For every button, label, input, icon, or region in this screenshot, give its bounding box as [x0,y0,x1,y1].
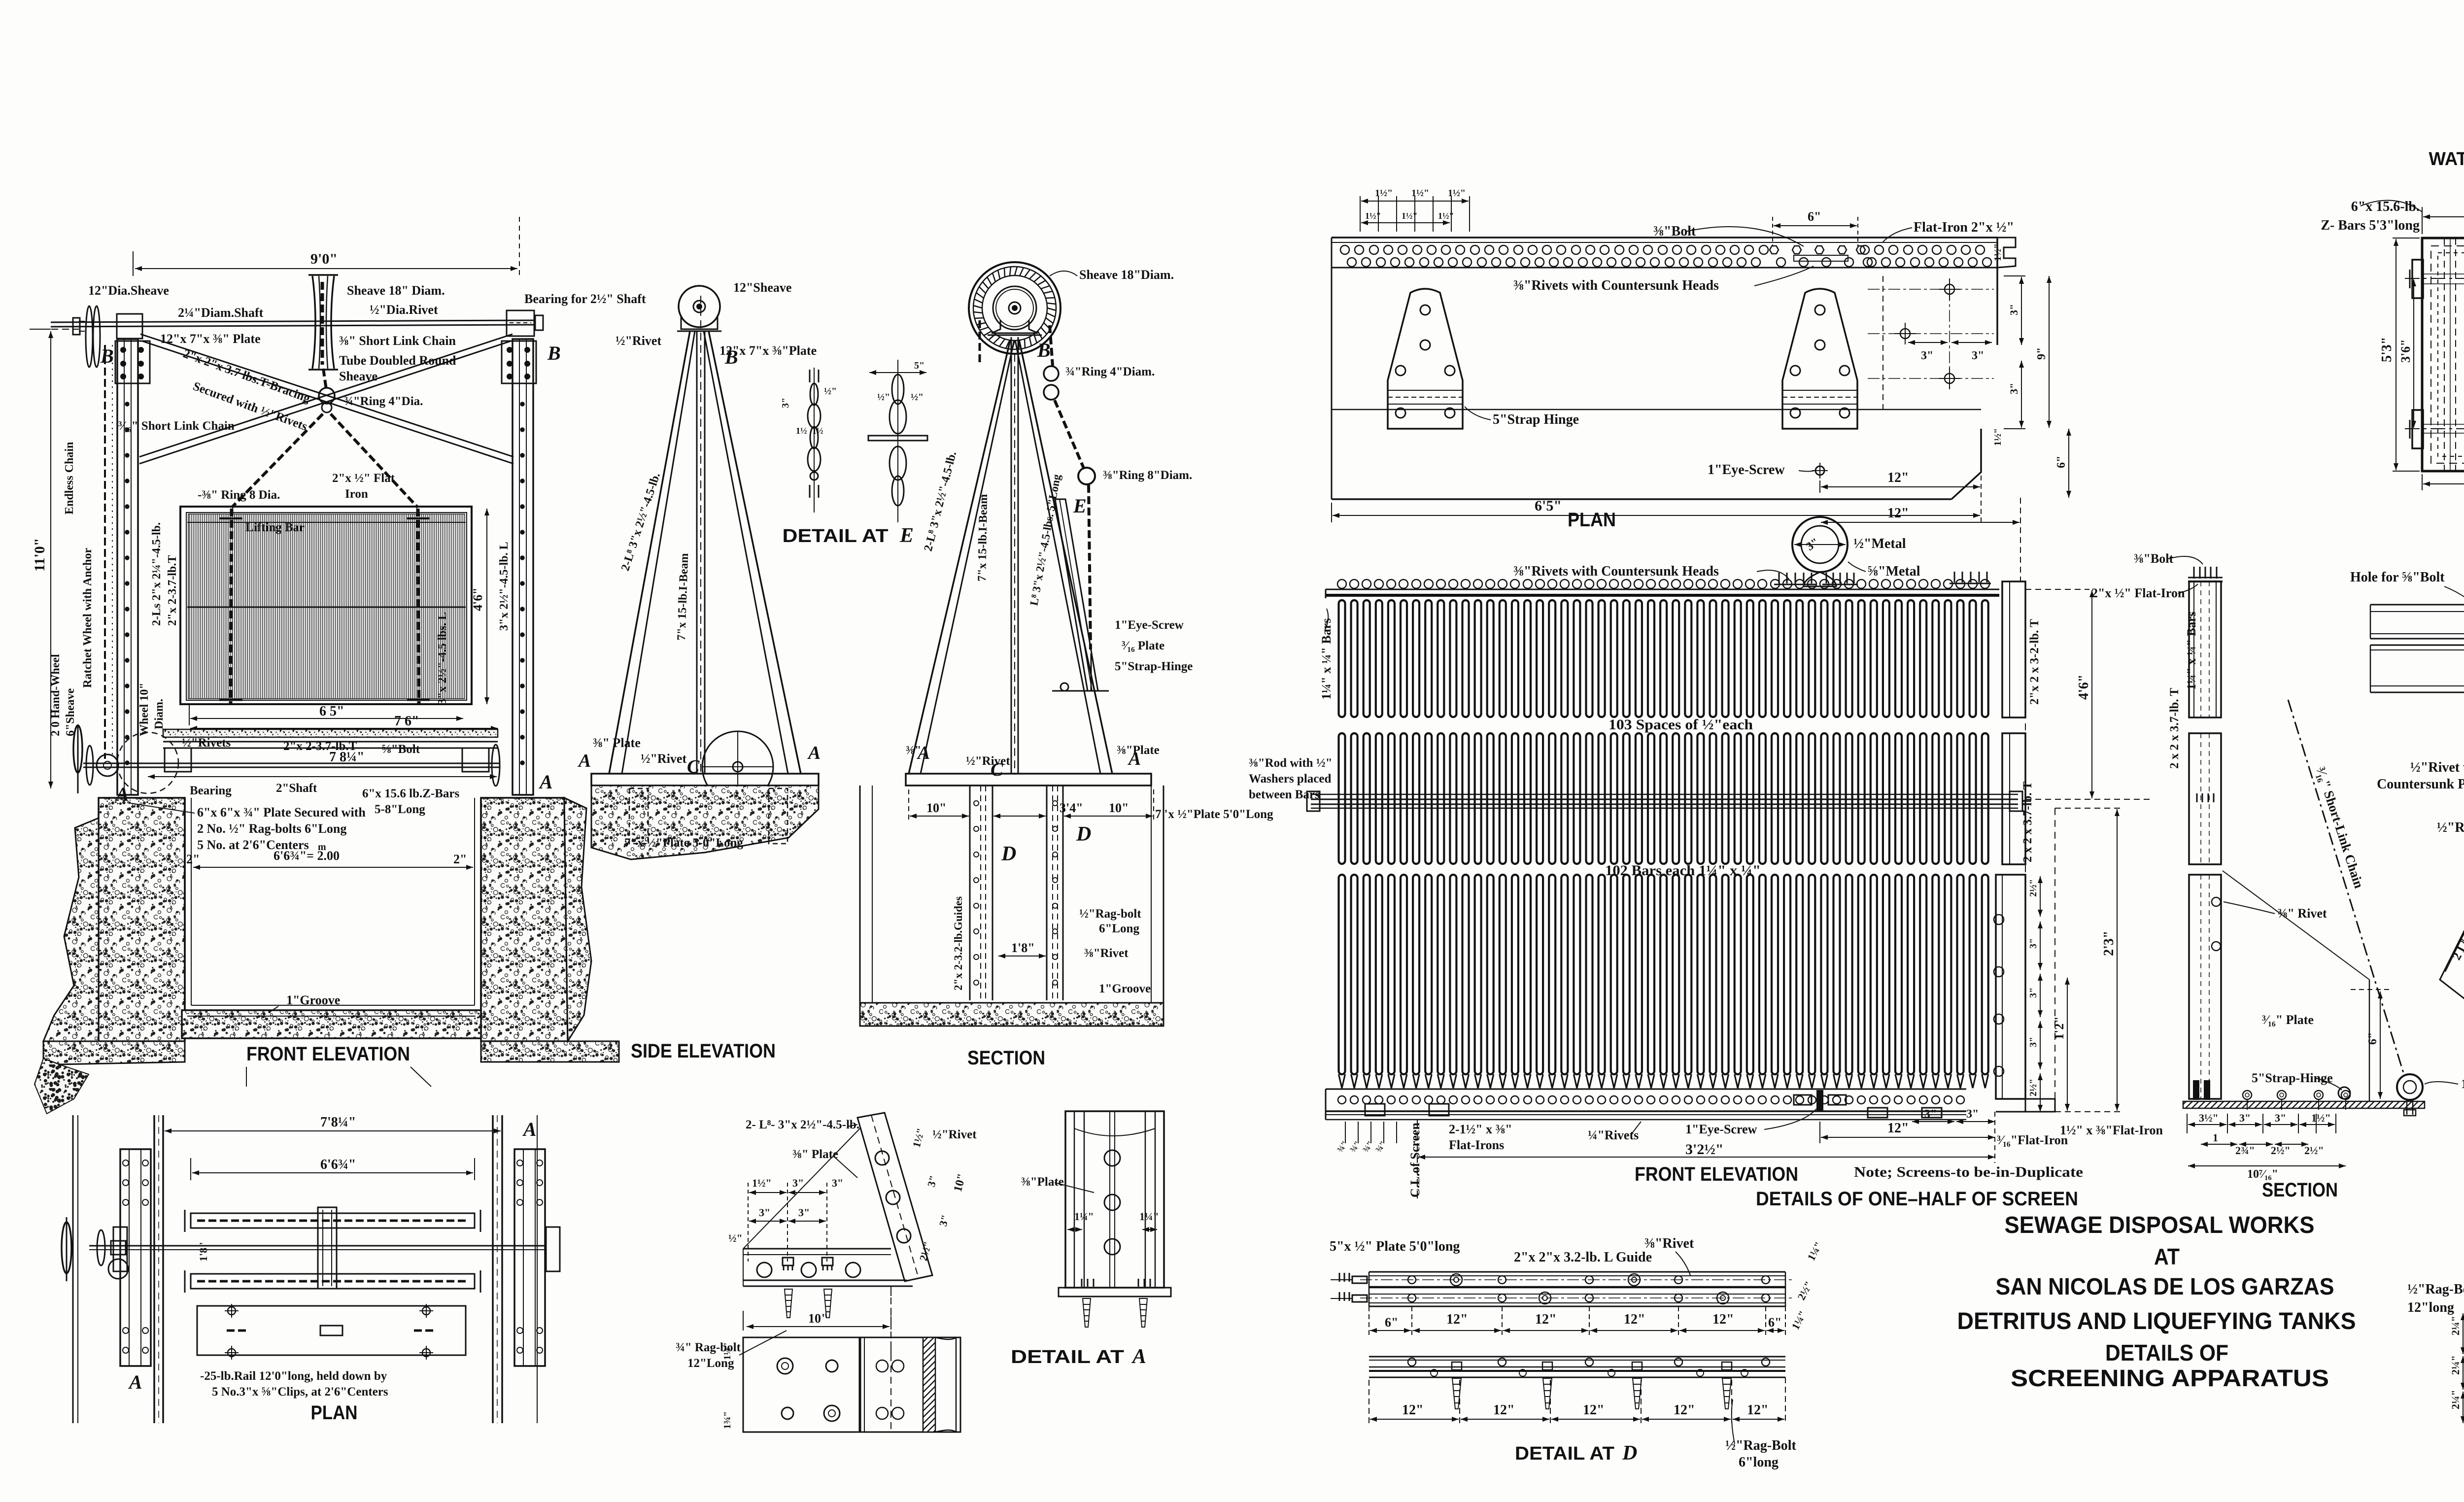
svg-text:2 x 2 x 3.7-lb. T: 2 x 2 x 3.7-lb. T [2021,782,2034,862]
svg-text:SIDE ELEVATION: SIDE ELEVATION [631,1040,776,1062]
svg-text:⅜" Short Link Chain: ⅜" Short Link Chain [339,334,456,348]
svg-text:3": 3" [1921,349,1933,362]
svg-text:2": 2" [453,852,467,866]
svg-text:½": ½" [911,392,924,403]
svg-text:⅜"Rod with ½": ⅜"Rod with ½" [1249,756,1332,770]
svg-text:5"Strap-Hinge: 5"Strap-Hinge [2252,1071,2333,1085]
svg-text:½"Rag-Bolt: ½"Rag-Bolt [1725,1438,1797,1453]
svg-text:⅜"Ring 8"Diam.: ⅜"Ring 8"Diam. [1103,469,1192,482]
svg-text:2½": 2½" [2271,1144,2291,1157]
svg-text:103 Spaces of ½"each: 103 Spaces of ½"each [1608,717,1753,733]
svg-text:⅜"Bolt: ⅜"Bolt [2134,551,2174,566]
svg-text:1½": 1½" [752,1177,772,1189]
svg-text:5": 5" [914,360,924,371]
svg-text:A: A [522,1118,537,1140]
svg-text:Flat-Iron 2"x ½": Flat-Iron 2"x ½" [1914,220,2014,235]
svg-text:⅜"Rivet: ⅜"Rivet [1644,1236,1694,1251]
svg-text:⅜"Rivet: ⅜"Rivet [1084,947,1129,960]
svg-text:1½": 1½" [2311,1112,2331,1124]
svg-text:1'8": 1'8" [1011,941,1035,955]
svg-text:⅜"Rivets with Countersunk Head: ⅜"Rivets with Countersunk Heads [1513,564,1719,579]
svg-text:C: C [687,756,700,777]
svg-text:A: A [1128,749,1141,769]
svg-text:Diam.: Diam. [153,699,166,729]
svg-text:6"x 15.6-lb.: 6"x 15.6-lb. [2351,199,2420,214]
svg-text:2"x 2-3.2-lb.Guides: 2"x 2-3.2-lb.Guides [952,896,964,990]
svg-text:2½": 2½" [2028,879,2039,897]
svg-text:1½": 1½" [1448,188,1466,199]
svg-text:2"x 2-3.7-lb.T: 2"x 2-3.7-lb.T [166,555,179,626]
svg-text:A: A [128,1371,142,1393]
svg-text:2½": 2½" [2304,1144,2324,1157]
svg-text:D: D [1001,843,1016,865]
svg-text:5-8"Long: 5-8"Long [375,803,425,816]
svg-text:A: A [807,743,821,763]
svg-text:D: D [1076,823,1091,846]
svg-text:¾"Ring 4"Diam.: ¾"Ring 4"Diam. [1065,365,1155,378]
svg-text:12": 12" [1674,1402,1695,1418]
svg-text:SECTION: SECTION [2262,1179,2338,1201]
svg-text:between Bars: between Bars [1249,788,1320,801]
svg-text:D: D [1622,1442,1637,1465]
svg-text:DETAIL AT: DETAIL AT [783,526,889,546]
svg-text:½"Rivet with: ½"Rivet with [2410,760,2464,775]
svg-text:B: B [547,342,561,364]
svg-text:Ratchet Wheel with Anchor: Ratchet Wheel with Anchor [81,547,94,688]
svg-text:1"Groove: 1"Groove [286,993,340,1007]
svg-text:SCREENING APPARATUS: SCREENING APPARATUS [2011,1365,2329,1392]
svg-text:DETAIL AT: DETAIL AT [1011,1347,1124,1367]
svg-text:1½": 1½" [1411,188,1429,199]
svg-text:1'8": 1'8" [197,1242,209,1262]
svg-text:7"x ½"Plate 5-0"Long: 7"x ½"Plate 5-0"Long [624,836,743,850]
svg-text:½": ½" [728,1232,743,1244]
svg-text:⅜": ⅜" [906,744,921,757]
svg-text:12": 12" [1887,1121,1909,1136]
svg-text:7'8¼": 7'8¼" [320,1115,356,1130]
svg-text:102 Bars each 1¼" x ¼": 102 Bars each 1¼" x ¼" [1605,862,1761,879]
svg-text:½": ½" [877,392,890,403]
svg-text:6 5": 6 5" [319,704,344,719]
svg-text:1"Eye-Screw: 1"Eye-Screw [2461,1077,2464,1091]
svg-text:7"x 15-lb.I-Beam: 7"x 15-lb.I-Beam [976,494,990,581]
svg-text:2¼": 2¼" [2449,1355,2462,1375]
svg-text:3": 3" [2028,1037,2039,1047]
svg-text:1½: 1½ [812,426,823,436]
svg-text:⅜" Plate: ⅜" Plate [792,1148,838,1161]
svg-text:Countersunk Point: Countersunk Point [2377,777,2464,792]
svg-text:Lifting Bar: Lifting Bar [245,521,305,534]
svg-text:½"Rivet: ½"Rivet [641,751,686,766]
svg-text:³⁄₁₆" Plate: ³⁄₁₆" Plate [2262,1013,2314,1027]
svg-text:⅝"Metal: ⅝"Metal [1868,564,1920,579]
svg-text:6"x 6"x ¾" Plate Secured with: 6"x 6"x ¾" Plate Secured with [197,805,366,819]
svg-text:5'3": 5'3" [2379,337,2395,362]
svg-text:1'2": 1'2" [2052,1016,2066,1040]
svg-text:WATER-WORKS AND SEWERAGE OF MO: WATER-WORKS AND SEWERAGE OF MONTERREY. [2429,149,2464,170]
svg-text:3'6": 3'6" [2398,339,2413,363]
svg-text:3": 3" [2028,988,2039,998]
svg-text:3": 3" [2275,1112,2286,1124]
svg-text:½"Metal: ½"Metal [1853,536,1906,551]
svg-text:1½": 1½" [1402,211,1418,221]
svg-text:½": ½" [824,386,837,397]
svg-text:2- L⁸- 3"x 2½"-4.5-lb.: 2- L⁸- 3"x 2½"-4.5-lb. [746,1118,859,1131]
svg-text:E: E [1073,495,1087,517]
svg-text:½"Rivet: ½"Rivet [966,754,1010,768]
svg-text:2"x 2 x 3-2-lb. T: 2"x 2 x 3-2-lb. T [2028,619,2041,705]
svg-text:1"Eye-Screw: 1"Eye-Screw [1708,462,1785,478]
svg-text:12": 12" [1402,1402,1424,1418]
svg-text:³⁄₁₆" Short Link Chain: ³⁄₁₆" Short Link Chain [118,419,235,433]
svg-text:2 0 Hand-Wheel: 2 0 Hand-Wheel [49,654,62,736]
svg-text:½"Rag-bolt: ½"Rag-bolt [1079,907,1141,921]
svg-text:3½": 3½" [2199,1112,2219,1124]
svg-text:12": 12" [1624,1312,1645,1327]
svg-text:5 No.3"x ⅝"Clips, at 2'6"Cente: 5 No.3"x ⅝"Clips, at 2'6"Centers [212,1385,388,1399]
svg-text:6'5": 6'5" [1535,498,1562,514]
svg-text:1½": 1½" [1375,188,1393,199]
svg-text:2": 2" [186,852,200,866]
svg-text:1½" x ⅜"Flat-Iron: 1½" x ⅜"Flat-Iron [2060,1123,2163,1137]
svg-text:6"Long: 6"Long [1099,922,1139,935]
svg-text:2 No. ½" Rag-bolts 6"Long: 2 No. ½" Rag-bolts 6"Long [197,821,346,836]
svg-text:2½": 2½" [2028,1079,2039,1096]
svg-text:12": 12" [1887,470,1909,485]
svg-text:Sheave 18"Diam.: Sheave 18"Diam. [1079,268,1174,282]
svg-text:11'0": 11'0" [32,538,48,572]
svg-text:12": 12" [1493,1402,1515,1418]
svg-text:6"x 15.6 lb.Z-Bars: 6"x 15.6 lb.Z-Bars [362,787,460,800]
svg-text:12": 12" [1887,506,1909,521]
svg-text:3": 3" [832,1177,843,1189]
svg-text:1: 1 [2213,1131,2218,1144]
svg-text:3": 3" [1966,1108,1979,1121]
svg-text:SAN NICOLAS DE LOS GARZAS: SAN NICOLAS DE LOS GARZAS [1996,1274,2334,1300]
svg-text:½"Rivet: ½"Rivet [616,334,661,348]
svg-text:5"Strap Hinge: 5"Strap Hinge [1493,412,1579,427]
svg-text:½"Rivet: ½"Rivet [932,1128,977,1141]
svg-text:4'6": 4'6" [471,587,485,611]
svg-text:A: A [114,783,129,805]
svg-text:Flat-Irons: Flat-Irons [1449,1138,1504,1152]
svg-text:-⅜" Ring 8 Dia.: -⅜" Ring 8 Dia. [198,488,280,502]
svg-text:PLAN: PLAN [311,1402,358,1424]
svg-text:⅜"Plate: ⅜"Plate [1021,1175,1064,1189]
svg-text:1"Eye-Screw: 1"Eye-Screw [1115,618,1184,632]
svg-text:1"Groove: 1"Groove [1099,982,1151,995]
svg-text:6": 6" [2366,1032,2379,1045]
svg-text:2"x ½" Flat-Iron: 2"x ½" Flat-Iron [2091,586,2185,600]
svg-text:3": 3" [2008,383,2020,394]
svg-text:Note; Screens-to be-in-Duplica: Note; Screens-to be-in-Duplicate [1854,1164,2083,1180]
svg-text:Sheave 18" Diam.: Sheave 18" Diam. [347,283,445,298]
svg-text:B: B [100,345,114,367]
svg-text:PLAN: PLAN [1568,509,1616,531]
svg-text:A: A [578,751,591,771]
svg-text:2 x 2 x 3.7-lb. T: 2 x 2 x 3.7-lb. T [2168,688,2181,769]
svg-text:⅜" Rivet: ⅜" Rivet [2278,906,2327,921]
svg-text:10": 10" [926,801,946,815]
svg-text:³⁄₁₆ Plate: ³⁄₁₆ Plate [1122,639,1164,652]
svg-text:2¾": 2¾" [2235,1144,2255,1157]
svg-text:⅜"Bolt: ⅜"Bolt [1653,224,1696,239]
svg-text:3": 3" [798,1206,810,1219]
svg-text:⅝"Bolt: ⅝"Bolt [382,743,420,756]
svg-text:12": 12" [1583,1402,1605,1418]
svg-text:12": 12" [1535,1312,1557,1327]
svg-text:B: B [724,346,738,368]
svg-text:DETAILS OF: DETAILS OF [2105,1340,2228,1365]
svg-text:3": 3" [792,1177,804,1189]
svg-text:3'4": 3'4" [1060,801,1083,815]
svg-text:1½": 1½" [1365,211,1381,221]
svg-text:12": 12" [1712,1312,1734,1327]
svg-text:DETAILS OF ONE–HALF OF SCREEN: DETAILS OF ONE–HALF OF SCREEN [1756,1188,2078,1210]
svg-text:6"Sheave: 6"Sheave [64,688,77,736]
svg-text:1½": 1½" [1438,211,1454,221]
svg-text:3'2½": 3'2½" [1685,1141,1724,1158]
svg-text:2-Ls 2"x 2¼"-4.5-lb.: 2-Ls 2"x 2¼"-4.5-lb. [150,522,163,626]
svg-text:3": 3" [1972,349,1984,362]
svg-text:½"Rivets: ½"Rivets [182,736,231,750]
svg-text:C.L.of Screen: C.L.of Screen [1408,1123,1422,1197]
svg-text:12": 12" [1747,1402,1769,1418]
svg-text:6'6¾": 6'6¾" [320,1157,356,1172]
svg-text:9": 9" [2035,347,2048,360]
svg-text:7"x ½"Plate 5'0"Long: 7"x ½"Plate 5'0"Long [1155,808,1273,821]
svg-text:3": 3" [2008,304,2020,315]
svg-text:1¼": 1¼" [1074,1210,1094,1223]
svg-text:¾"Ring 4"Dia.: ¾"Ring 4"Dia. [344,395,423,408]
svg-text:⅜"Rivets with Countersunk Head: ⅜"Rivets with Countersunk Heads [1513,278,1719,293]
svg-text:SEWAGE DISPOSAL WORKS: SEWAGE DISPOSAL WORKS [2005,1212,2315,1238]
svg-text:1¼": 1¼" [1139,1210,1159,1223]
svg-text:3": 3" [1924,1108,1937,1121]
svg-text:2'3": 2'3" [2101,931,2117,956]
svg-text:A: A [538,771,553,793]
svg-text:5"x ½" Plate 5'0"long: 5"x ½" Plate 5'0"long [1330,1239,1460,1254]
svg-text:Washers placed: Washers placed [1249,772,1331,785]
svg-text:6": 6" [2055,456,2068,468]
svg-text:DETAIL AT: DETAIL AT [1515,1443,1614,1464]
svg-text:7 6": 7 6" [394,714,419,729]
svg-text:2-1½" x ⅜": 2-1½" x ⅜" [1449,1122,1512,1136]
svg-text:2"x 2"x 3.2-lb. L Guide: 2"x 2"x 3.2-lb. L Guide [1514,1250,1652,1265]
svg-text:SECTION: SECTION [967,1047,1045,1069]
svg-text:¼"Rivets: ¼"Rivets [1588,1128,1639,1142]
svg-text:1½: 1½ [796,426,807,436]
svg-text:½"Dia.Rivet: ½"Dia.Rivet [370,303,438,317]
svg-text:C: C [991,759,1003,780]
svg-text:3"x 2½"-4.5-lb. L: 3"x 2½"-4.5-lb. L [498,542,511,631]
svg-text:12": 12" [1446,1312,1468,1327]
svg-text:-25-lb.Rail 12'0"long, held do: -25-lb.Rail 12'0"long, held down by [200,1369,387,1383]
svg-text:6": 6" [1768,1315,1781,1330]
svg-text:2"Shaft: 2"Shaft [276,782,317,795]
svg-text:Bearing for 2½" Shaft: Bearing for 2½" Shaft [524,292,646,306]
svg-text:⅜" Plate: ⅜" Plate [593,736,641,750]
svg-text:1"Eye-Screw: 1"Eye-Screw [1685,1122,1757,1136]
svg-text:2¼"Diam.Shaft: 2¼"Diam.Shaft [178,306,264,320]
svg-text:12"long: 12"long [2407,1300,2454,1315]
svg-text:2¼": 2¼" [2449,1316,2462,1335]
svg-text:6"long: 6"long [1739,1455,1779,1470]
svg-text:Iron: Iron [345,487,368,501]
svg-text:³⁄₁₆"Flat-Iron: ³⁄₁₆"Flat-Iron [1997,1133,2068,1147]
svg-text:½"Rag-Bolt: ½"Rag-Bolt [2407,1282,2464,1297]
svg-text:3": 3" [780,398,791,408]
svg-text:1¼" x ¼" Bars: 1¼" x ¼" Bars [1319,618,1334,700]
svg-text:Hole for ⅝"Bolt: Hole for ⅝"Bolt [2350,570,2445,585]
svg-text:3": 3" [759,1206,770,1219]
svg-text:Endless Chain: Endless Chain [63,442,76,514]
svg-text:AT: AT [2154,1244,2180,1269]
svg-text:6": 6" [1808,209,1821,224]
svg-text:9'0": 9'0" [310,251,338,267]
svg-text:Z- Bars 5'3"long: Z- Bars 5'3"long [2321,218,2420,233]
svg-text:3": 3" [2028,938,2039,949]
svg-text:3"x 2½"-4.5 lbs. L: 3"x 2½"-4.5 lbs. L [436,612,449,705]
svg-text:2"x 2-3.7-lb.T: 2"x 2-3.7-lb.T [283,740,357,753]
svg-text:Bearing: Bearing [190,784,232,797]
svg-text:Wheel 10": Wheel 10" [138,683,151,736]
svg-text:6'6¾"= 2.00: 6'6¾"= 2.00 [274,849,340,863]
svg-text:1¼" x ¼" Bars: 1¼" x ¼" Bars [2185,612,2198,690]
svg-text:3": 3" [2239,1112,2251,1124]
svg-text:FRONT ELEVATION: FRONT ELEVATION [246,1043,410,1065]
svg-text:DETRITUS AND LIQUEFYING TANKS: DETRITUS AND LIQUEFYING TANKS [1957,1308,2356,1334]
svg-text:1¼": 1¼" [722,1342,733,1360]
svg-text:12"Dia.Sheave: 12"Dia.Sheave [88,283,169,298]
svg-text:½"Rivets: ½"Rivets [2437,820,2464,835]
svg-text:4'6": 4'6" [2076,675,2091,700]
svg-text:6": 6" [1385,1315,1398,1330]
svg-text:10": 10" [808,1311,828,1326]
svg-text:FRONT ELEVATION: FRONT ELEVATION [1635,1163,1798,1185]
svg-text:1½": 1½" [1992,428,2003,446]
svg-text:A: A [1131,1345,1146,1368]
svg-text:10": 10" [1109,801,1129,815]
svg-text:12"x 7"x ⅜" Plate: 12"x 7"x ⅜" Plate [160,332,261,346]
svg-text:B: B [1037,339,1051,361]
svg-text:Sheave: Sheave [339,369,377,383]
svg-text:m: m [318,842,326,853]
svg-text:E: E [899,524,914,547]
svg-text:12"Sheave: 12"Sheave [733,280,791,295]
svg-text:2¼": 2¼" [2449,1390,2462,1409]
svg-text:5"Strap-Hinge: 5"Strap-Hinge [1115,660,1193,673]
svg-text:Tube Doubled Round: Tube Doubled Round [339,353,456,368]
svg-text:1½": 1½" [1992,243,2003,261]
svg-text:2"x ½" Flat: 2"x ½" Flat [332,472,395,485]
svg-text:1¾": 1¾" [722,1411,733,1429]
